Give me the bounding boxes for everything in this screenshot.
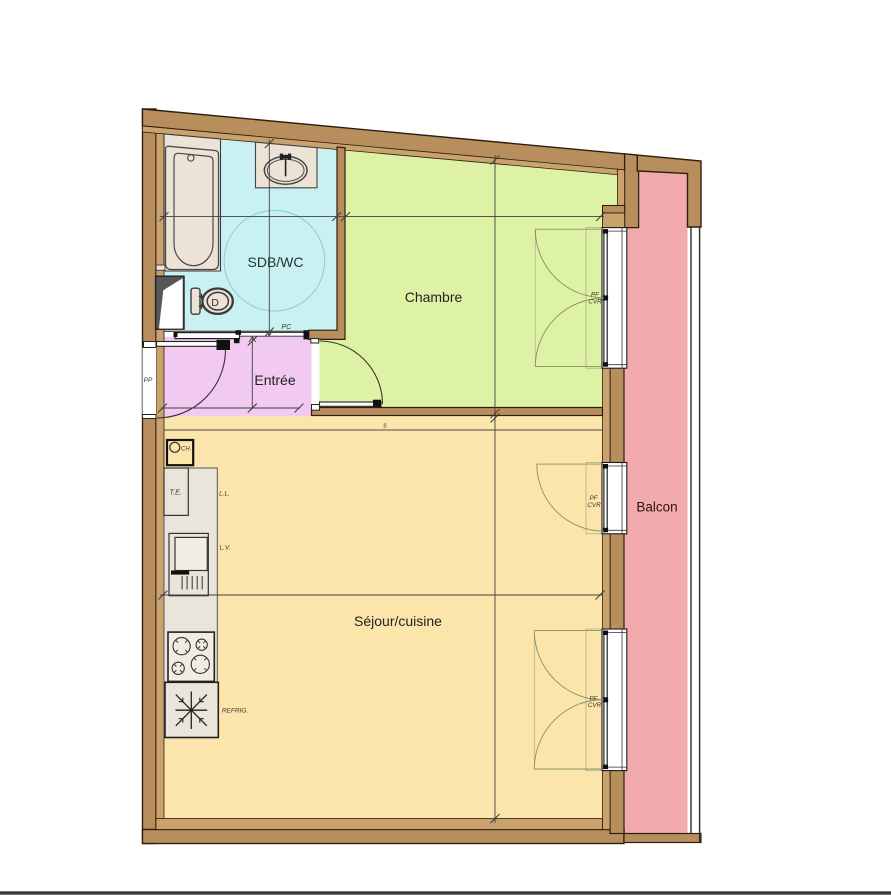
- svg-text:L.L.: L.L.: [219, 490, 230, 497]
- svg-text:Séjour/cuisine: Séjour/cuisine: [354, 613, 442, 629]
- svg-text:D: D: [211, 297, 219, 309]
- svg-text:CH.: CH.: [181, 447, 191, 453]
- svg-text:SDB/WC: SDB/WC: [248, 254, 304, 270]
- svg-text:T.E.: T.E.: [170, 490, 182, 497]
- svg-text:Balcon: Balcon: [636, 500, 677, 515]
- svg-text:PP: PP: [144, 377, 153, 384]
- svg-text:Chambre: Chambre: [405, 289, 463, 305]
- svg-text:Entrée: Entrée: [254, 372, 295, 388]
- svg-text:PF: PF: [591, 292, 600, 299]
- svg-text:s: s: [383, 423, 387, 430]
- svg-text:CVR: CVR: [587, 502, 601, 509]
- svg-text:PF: PF: [589, 495, 598, 502]
- svg-text:CVR: CVR: [588, 299, 602, 306]
- svg-text:CVR: CVR: [588, 702, 602, 709]
- svg-text:PC: PC: [281, 324, 292, 331]
- svg-text:L.V.: L.V.: [219, 545, 230, 552]
- svg-text:REFRIG.: REFRIG.: [222, 707, 249, 714]
